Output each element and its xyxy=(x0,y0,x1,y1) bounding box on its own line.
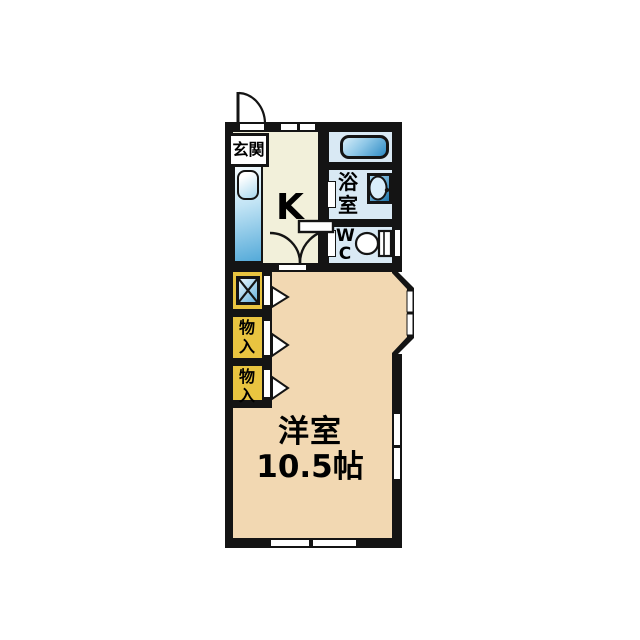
door-swing-arrow-icon-3 xyxy=(272,377,288,399)
bathroom-label: 浴室 xyxy=(337,171,359,217)
kitchen-label: K xyxy=(270,186,310,230)
toilet-label: WC xyxy=(336,228,354,263)
storage-lower-label: 物入 xyxy=(238,368,256,406)
washbasin-icon xyxy=(370,177,390,200)
door-swing-arrow-icon-2 xyxy=(272,334,288,356)
floor-plan-canvas: 玄関 xyxy=(0,0,640,640)
entrance-swing-door-icon xyxy=(238,92,265,123)
main-room-size-label: 10.5帖 xyxy=(253,449,367,485)
door-swing-arrow-icon-1 xyxy=(272,287,288,307)
storage-upper-label: 物入 xyxy=(238,319,256,357)
main-room-label: 洋室 xyxy=(270,414,350,450)
plan-symbols-layer xyxy=(0,0,640,640)
toilet-icon xyxy=(356,231,391,256)
bay-window-icon xyxy=(392,266,414,360)
washing-machine-x-icon xyxy=(238,278,258,303)
